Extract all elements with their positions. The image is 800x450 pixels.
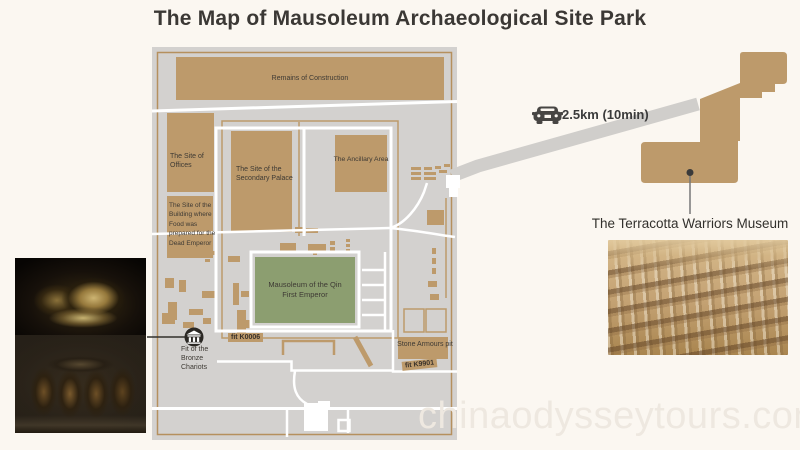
route-distance-label: 2.5km (10min) [562,106,649,124]
label-food-building: The Site of the Building where Food was … [169,201,224,248]
label-site-of-offices: The Site of Offices [170,152,212,171]
car-icon [532,107,563,125]
label-pit-k0006: fit K0006 [228,333,263,342]
bronze-chariots-photo [15,258,146,433]
museum-pointer-dot [687,169,694,176]
site-park-map-infographic: The Map of Mausoleum Archaeological Site… [0,0,800,450]
museum-building-icon [185,328,204,347]
label-bronze-chariots-pit: Fit of the Bronze Chariots [181,345,221,372]
label-secondary-palace: The Site of the Secondary Palace [236,165,310,184]
label-mausoleum: Mausoleum of the Qin First Emperor [255,257,355,323]
page-title: The Map of Mausoleum Archaeological Site… [0,7,800,31]
watermark: chinaodysseytours.com [418,395,800,438]
label-stone-armours-pit: Stone Armours pit [392,340,458,349]
label-remains-of-construction: Remains of Construction [176,57,444,100]
bronze-chariot-photo-bottom [15,335,146,433]
label-ancillary-area: The Ancillary Area [331,155,391,164]
bronze-chariot-photo-top [15,258,146,335]
terracotta-warriors-photo [608,240,788,355]
map-gate [446,175,460,188]
label-terracotta-museum: The Terracotta Warriors Museum [584,215,796,233]
